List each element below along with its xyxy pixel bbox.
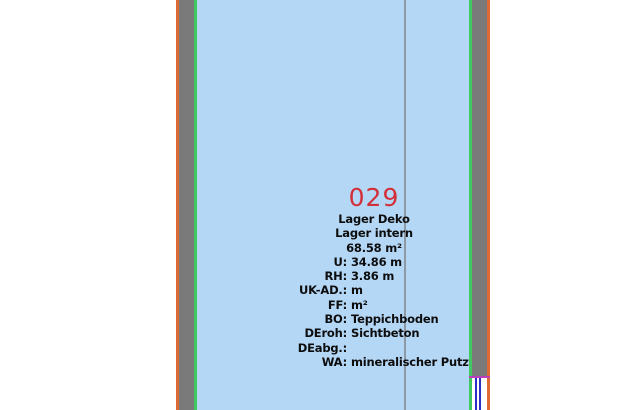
info-value: Teppichboden [351,312,464,326]
info-label: RH: [240,269,347,283]
info-value: 3.86 m [351,269,464,283]
room-number: 029 [284,183,464,212]
info-label: BO: [240,312,347,326]
info-label: FF: [240,298,347,312]
room-name-line2: Lager intern [284,226,464,240]
window-glass-line[interactable] [479,378,481,410]
info-value: m [351,283,464,297]
room-info-row: UK-AD.: m [240,283,464,297]
room-info-row: RH: 3.86 m [240,269,464,283]
window-glass-line[interactable] [475,378,477,410]
info-value: m² [351,298,464,312]
room-info-row: DEroh: Sichtbeton [240,326,464,340]
floorplan-canvas: 029 Lager Deko Lager intern 68.58 m² U: … [0,0,620,410]
room-info-row: FF: m² [240,298,464,312]
info-label: U: [240,255,347,269]
room-stamp[interactable]: 029 Lager Deko Lager intern 68.58 m² U: … [240,183,464,369]
room-info-row: WA: mineralischer Putz [240,355,464,369]
left-wall-inner-edge-line[interactable] [194,0,197,410]
room-info-row: DEabg.: [240,341,464,355]
room-info-row: BO: Teppichboden [240,312,464,326]
room-area-value: 68.58 m² [284,241,464,255]
info-label: DEroh: [240,326,347,340]
right-wall[interactable] [472,0,487,377]
info-value [351,341,464,355]
info-value: 34.86 m [351,255,464,269]
info-label: DEabg.: [240,341,347,355]
room-name-line1: Lager Deko [284,212,464,226]
info-label: UK-AD.: [240,283,347,297]
room-info-row: U: 34.86 m [240,255,464,269]
info-value: mineralischer Putz [351,355,469,369]
right-wall-outer-edge-line[interactable] [487,0,490,410]
info-value: Sichtbeton [351,326,464,340]
info-label: WA: [240,355,347,369]
left-wall[interactable] [179,0,194,410]
